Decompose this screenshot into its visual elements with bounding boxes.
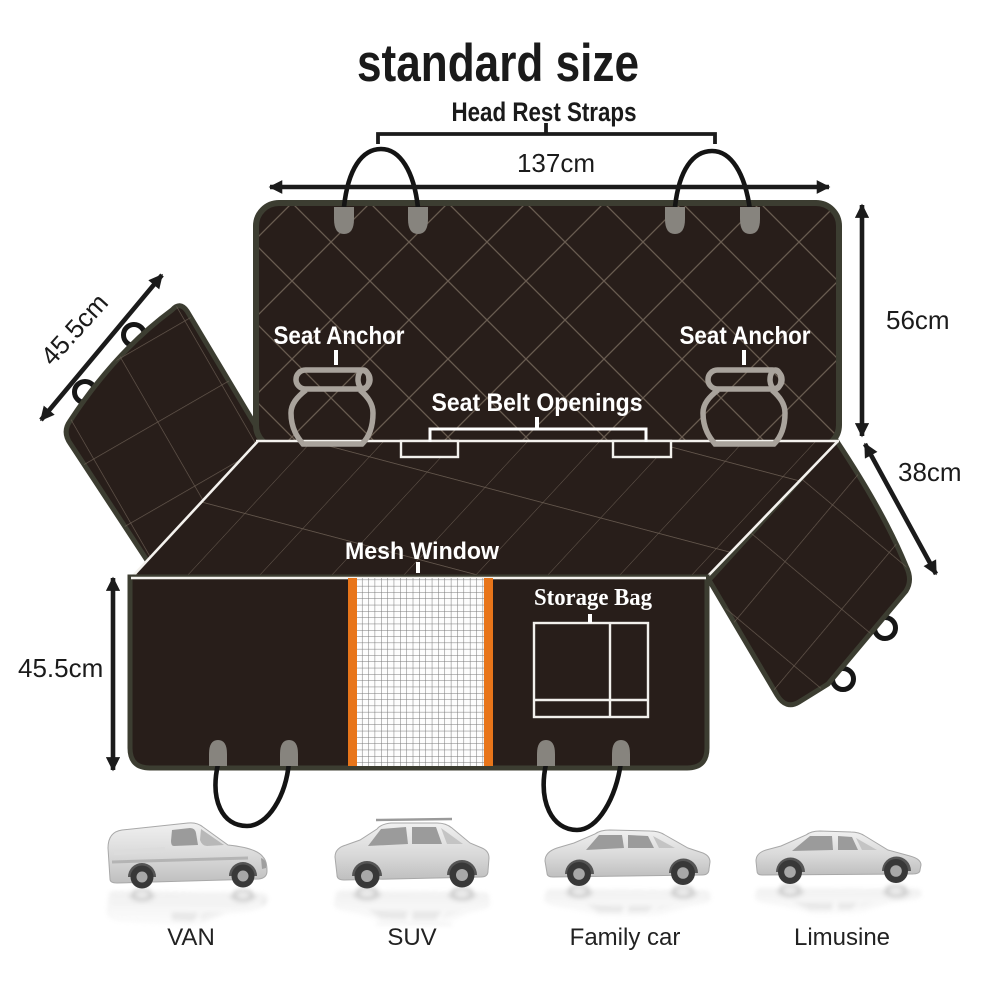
svg-text:standard size: standard size bbox=[357, 34, 639, 93]
svg-text:38cm: 38cm bbox=[898, 457, 962, 487]
svg-text:Storage Bag: Storage Bag bbox=[534, 585, 652, 611]
svg-text:VAN: VAN bbox=[167, 924, 215, 951]
svg-text:Family car: Family car bbox=[570, 924, 681, 951]
svg-text:56cm: 56cm bbox=[886, 305, 950, 335]
svg-text:45.5cm: 45.5cm bbox=[18, 653, 103, 683]
svg-text:Mesh Window: Mesh Window bbox=[345, 538, 499, 565]
svg-text:Seat Anchor: Seat Anchor bbox=[680, 322, 811, 350]
svg-text:Seat Anchor: Seat Anchor bbox=[274, 322, 405, 350]
svg-text:SUV: SUV bbox=[387, 924, 436, 951]
svg-text:Seat Belt Openings: Seat Belt Openings bbox=[432, 389, 643, 417]
svg-text:45.5cm: 45.5cm bbox=[35, 288, 114, 371]
svg-text:Head Rest Straps: Head Rest Straps bbox=[452, 97, 637, 127]
svg-text:137cm: 137cm bbox=[517, 148, 595, 178]
svg-text:Limusine: Limusine bbox=[794, 924, 890, 951]
